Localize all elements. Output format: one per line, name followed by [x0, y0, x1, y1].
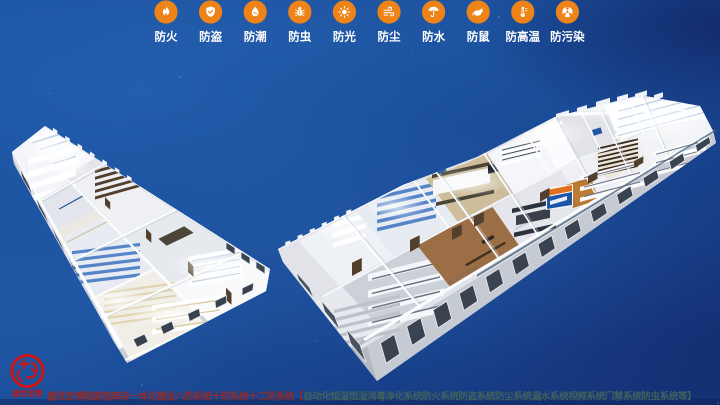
svg-text:防污染: 防污染: [550, 30, 585, 44]
svg-text:盛世宏博: 盛世宏博: [12, 388, 42, 398]
svg-text:盛世宏博档案馆库房一体化建设八防系统十防系统十二防系统【自动: 盛世宏博档案馆库房一体化建设八防系统十防系统十二防系统【自动化恒温恒湿消毒净化系…: [47, 391, 696, 403]
svg-text:防水: 防水: [422, 30, 445, 44]
svg-text:防光: 防光: [333, 30, 356, 44]
svg-text:防虫: 防虫: [288, 30, 311, 44]
svg-text:防潮: 防潮: [244, 30, 267, 44]
svg-text:防鼠: 防鼠: [467, 30, 490, 44]
svg-text:防盗: 防盗: [199, 30, 222, 44]
svg-text:防高温: 防高温: [506, 30, 541, 44]
svg-text:防火: 防火: [155, 30, 178, 44]
svg-text:防尘: 防尘: [378, 30, 401, 44]
